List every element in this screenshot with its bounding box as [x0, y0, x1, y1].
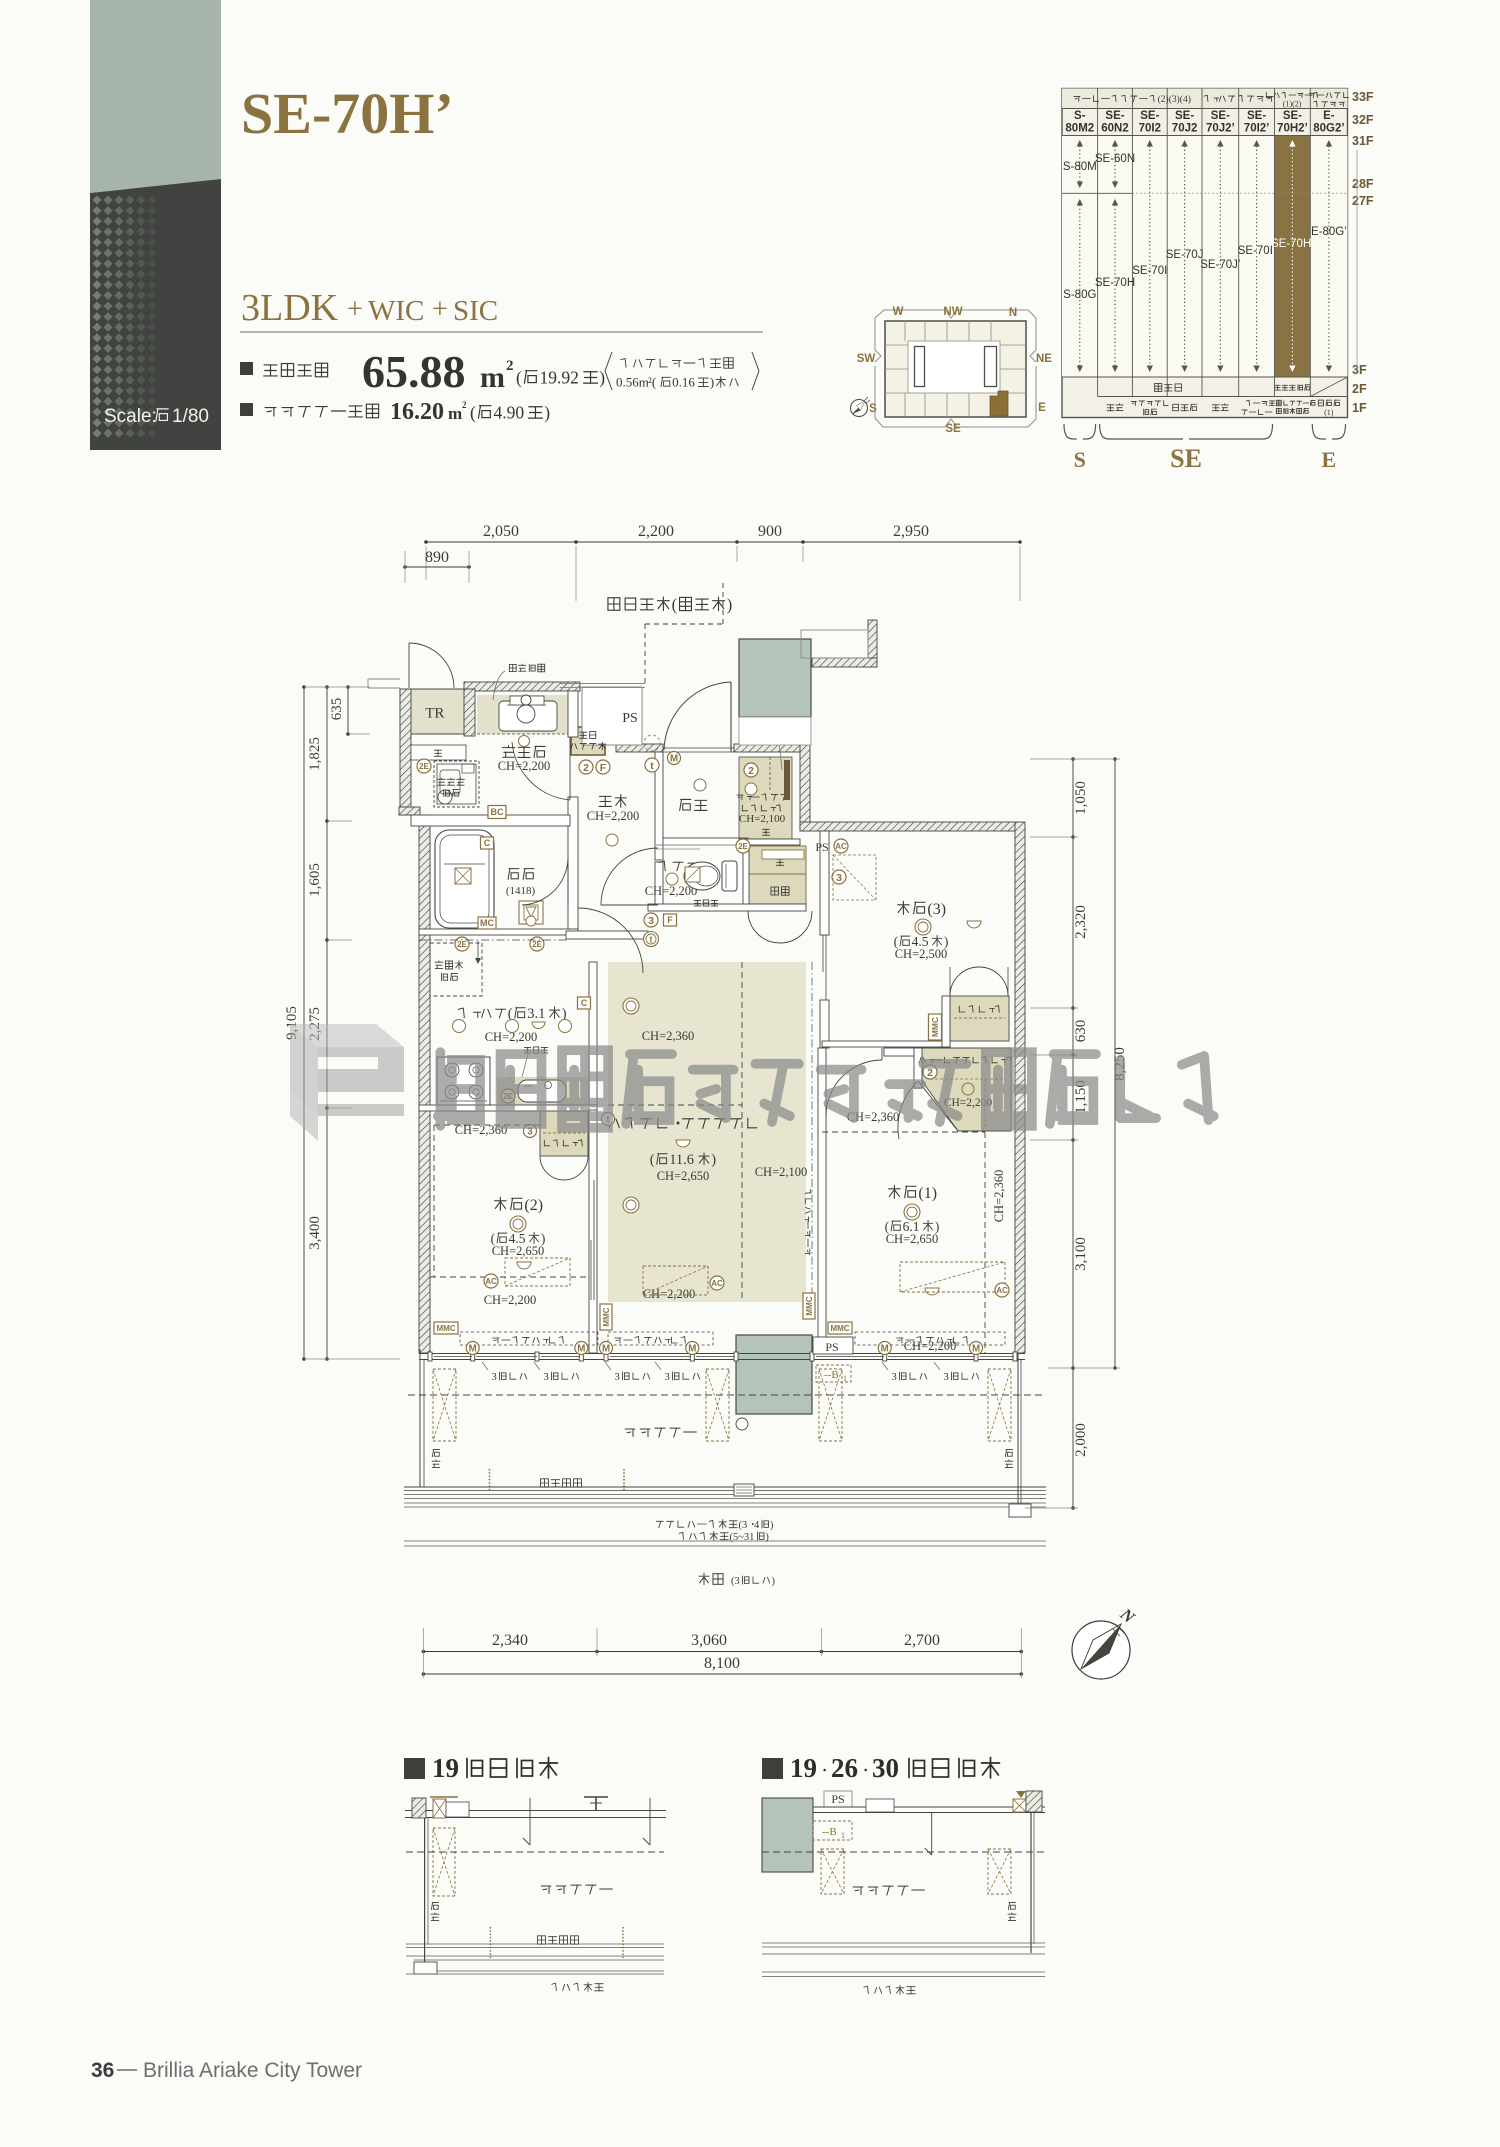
svg-text:F: F — [667, 915, 673, 925]
svg-text:CH=2,650: CH=2,650 — [657, 1169, 710, 1183]
svg-text:NE: NE — [1036, 353, 1052, 365]
svg-text:(3): (3) — [927, 901, 946, 918]
svg-text:CH=2,100: CH=2,100 — [739, 813, 786, 825]
svg-text:80G2’: 80G2’ — [1313, 123, 1344, 135]
svg-text:AC: AC — [711, 1279, 723, 1288]
svg-text:SE: SE — [1170, 444, 1202, 473]
svg-text:(1)(2): (1)(2) — [1283, 99, 1302, 108]
svg-text:890: 890 — [425, 549, 449, 566]
svg-text:AC: AC — [996, 1286, 1008, 1295]
svg-text:M: M — [670, 754, 678, 765]
svg-text:1F: 1F — [1352, 401, 1367, 415]
svg-text:): ) — [599, 367, 605, 387]
svg-text:CH=2,360: CH=2,360 — [642, 1029, 695, 1043]
svg-text:): ) — [770, 1520, 774, 1531]
svg-text:900: 900 — [758, 523, 782, 540]
svg-text:2E: 2E — [738, 842, 748, 851]
svg-text:W: W — [893, 306, 904, 318]
svg-text:t: t — [650, 935, 653, 945]
svg-text:MC: MC — [480, 918, 494, 928]
svg-text:3: 3 — [615, 1372, 620, 1383]
svg-text:Scale:: Scale: — [104, 406, 157, 427]
svg-text:2E: 2E — [419, 762, 429, 771]
svg-text:CH=2,100: CH=2,100 — [755, 1165, 808, 1179]
svg-text:SE: SE — [945, 423, 961, 435]
svg-text:3.1: 3.1 — [527, 1006, 545, 1022]
svg-text:M: M — [469, 1344, 477, 1355]
svg-text:0.56m: 0.56m — [616, 375, 649, 390]
svg-text:32F: 32F — [1352, 113, 1374, 127]
svg-text:36: 36 — [91, 2059, 114, 2082]
svg-text:CH=2,200: CH=2,200 — [587, 809, 640, 823]
svg-text:11.6: 11.6 — [669, 1152, 694, 1168]
svg-text:SE-70I’: SE-70I’ — [1238, 245, 1276, 257]
svg-text:3: 3 — [944, 1372, 949, 1383]
svg-text:NW: NW — [943, 306, 962, 318]
svg-text:): ) — [710, 375, 714, 390]
svg-text:): ) — [727, 595, 733, 614]
svg-text:N: N — [1009, 307, 1017, 319]
svg-text:630: 630 — [1073, 1020, 1089, 1043]
svg-text:3: 3 — [892, 1372, 897, 1383]
svg-text:+: + — [432, 294, 448, 325]
svg-text:0.16: 0.16 — [672, 375, 695, 390]
svg-text:26: 26 — [831, 1753, 858, 1783]
svg-text:1: 1 — [843, 1374, 847, 1383]
svg-text:SE-60N: SE-60N — [1095, 153, 1135, 165]
svg-text:8,100: 8,100 — [704, 1655, 740, 1672]
svg-text:SE-70I: SE-70I — [1132, 265, 1167, 277]
svg-text:(3: (3 — [731, 1576, 740, 1587]
svg-text:): ) — [711, 1152, 716, 1168]
svg-text:E: E — [1038, 402, 1046, 414]
svg-text:65.88: 65.88 — [362, 346, 466, 397]
svg-text:4.90: 4.90 — [493, 402, 524, 422]
svg-text:CH=2,200: CH=2,200 — [498, 759, 551, 773]
svg-text:635: 635 — [329, 698, 345, 721]
svg-text:m: m — [448, 404, 462, 423]
svg-text:SE-70J’: SE-70J’ — [1200, 259, 1240, 271]
svg-text:31F: 31F — [1352, 134, 1374, 148]
svg-text:CH=2,650: CH=2,650 — [492, 1244, 545, 1258]
svg-text:SIC: SIC — [453, 295, 498, 327]
svg-text:70I2’: 70I2’ — [1244, 123, 1270, 135]
svg-text:Brillia Ariake City Tower: Brillia Ariake City Tower — [143, 2059, 362, 2082]
svg-text:2,200: 2,200 — [638, 523, 674, 540]
svg-text:(: ( — [516, 367, 522, 387]
svg-text:3: 3 — [836, 872, 842, 884]
svg-text:3: 3 — [665, 1372, 670, 1383]
svg-text:--B: --B — [822, 1826, 837, 1838]
svg-text:SE-: SE- — [1283, 110, 1302, 122]
svg-text:M: M — [972, 1344, 980, 1355]
svg-text:S-: S- — [1074, 110, 1086, 122]
svg-text:2,320: 2,320 — [1073, 905, 1089, 939]
svg-text:t: t — [650, 760, 654, 772]
svg-text:4: 4 — [754, 1520, 760, 1531]
svg-text:M: M — [881, 1344, 889, 1355]
svg-text:²(: ²( — [648, 375, 656, 390]
svg-text:C: C — [581, 998, 588, 1008]
svg-text:PS: PS — [831, 1792, 844, 1806]
svg-text:SE-: SE- — [1247, 110, 1266, 122]
svg-text:CH=2,200: CH=2,200 — [484, 1293, 537, 1307]
svg-text:PS: PS — [622, 711, 638, 726]
svg-text:1/80: 1/80 — [172, 406, 209, 427]
svg-text:(1): (1) — [918, 1185, 937, 1202]
svg-text:+: + — [347, 294, 363, 325]
svg-text:M: M — [577, 1344, 585, 1355]
svg-text:MMC: MMC — [830, 1324, 849, 1333]
svg-text:2,050: 2,050 — [483, 523, 519, 540]
svg-text:(: ( — [470, 402, 476, 422]
svg-text:CH=2,650: CH=2,650 — [886, 1232, 939, 1246]
svg-text:SW: SW — [857, 353, 876, 365]
svg-text:19.92: 19.92 — [539, 367, 578, 387]
svg-text:(3: (3 — [738, 1520, 747, 1531]
svg-text:--B: --B — [824, 1369, 839, 1381]
svg-text:2: 2 — [506, 358, 514, 374]
svg-text:2,340: 2,340 — [492, 1632, 528, 1649]
svg-text:1,605: 1,605 — [307, 863, 323, 897]
svg-text:70H2’: 70H2’ — [1277, 123, 1308, 135]
svg-text:MMC: MMC — [436, 1324, 455, 1333]
svg-text:PS: PS — [825, 1340, 838, 1354]
svg-text:TR: TR — [425, 705, 444, 721]
svg-text:2: 2 — [748, 765, 754, 777]
svg-text:19: 19 — [432, 1753, 459, 1783]
svg-text:BC: BC — [491, 807, 504, 817]
svg-text:AC: AC — [485, 1277, 497, 1286]
svg-text:3,060: 3,060 — [691, 1632, 727, 1649]
svg-text:F: F — [600, 762, 607, 774]
svg-text:27F: 27F — [1352, 194, 1374, 208]
svg-text:CH=2,360: CH=2,360 — [992, 1170, 1006, 1223]
svg-text:(: ( — [650, 1152, 655, 1168]
svg-text:S-80M: S-80M — [1063, 161, 1097, 173]
svg-text:2: 2 — [462, 400, 467, 410]
svg-text:E: E — [1322, 447, 1337, 472]
svg-text:3: 3 — [544, 1372, 549, 1383]
svg-text:2F: 2F — [1352, 382, 1367, 396]
svg-text:m: m — [480, 361, 505, 394]
svg-text:80M2: 80M2 — [1065, 123, 1094, 135]
svg-text:S: S — [1074, 447, 1086, 472]
svg-text:M: M — [688, 1344, 696, 1355]
svg-text:19: 19 — [790, 1753, 817, 1783]
svg-text:SE-70J: SE-70J — [1166, 249, 1204, 261]
svg-text:(1): (1) — [1324, 408, 1334, 417]
svg-text:WIC: WIC — [368, 295, 424, 327]
svg-text:70J2: 70J2 — [1172, 123, 1198, 135]
svg-text:SE-: SE- — [1105, 110, 1124, 122]
svg-text:30: 30 — [872, 1753, 899, 1783]
svg-text:3,400: 3,400 — [307, 1216, 323, 1250]
svg-text:C: C — [484, 838, 491, 848]
svg-text:3: 3 — [492, 1372, 497, 1383]
svg-text:33F: 33F — [1352, 90, 1374, 104]
svg-text:S-80G: S-80G — [1063, 289, 1096, 301]
svg-text:70I2: 70I2 — [1139, 123, 1161, 135]
svg-text:CH=2,500: CH=2,500 — [895, 947, 948, 961]
svg-text:SE-: SE- — [1140, 110, 1159, 122]
svg-text:16.20: 16.20 — [390, 399, 444, 425]
svg-text:2,700: 2,700 — [904, 1632, 940, 1649]
svg-text:1,050: 1,050 — [1073, 781, 1089, 815]
svg-text:MMC: MMC — [602, 1307, 611, 1326]
svg-text:): ) — [771, 1576, 775, 1587]
svg-text:1,825: 1,825 — [307, 737, 323, 771]
svg-text:2: 2 — [583, 762, 589, 774]
svg-text:(2)(3)(4): (2)(3)(4) — [1158, 94, 1191, 105]
svg-text:): ) — [544, 402, 550, 422]
svg-text:3,100: 3,100 — [1073, 1237, 1089, 1271]
svg-text:2E: 2E — [457, 940, 467, 949]
svg-text:E-80G’: E-80G’ — [1311, 226, 1347, 238]
svg-text:(: ( — [672, 595, 678, 614]
svg-text:2,000: 2,000 — [1073, 1423, 1089, 1457]
svg-text:(1418): (1418) — [506, 885, 536, 897]
svg-text:3F: 3F — [1352, 363, 1367, 377]
svg-text:2E: 2E — [532, 940, 542, 949]
svg-text:SE-: SE- — [1211, 110, 1230, 122]
svg-text:S: S — [869, 403, 877, 415]
svg-text:SE-: SE- — [1175, 110, 1194, 122]
svg-text:MMC: MMC — [805, 1296, 814, 1315]
svg-text:28F: 28F — [1352, 177, 1374, 191]
svg-text:M: M — [602, 1344, 610, 1355]
svg-text:PS: PS — [815, 840, 828, 854]
svg-text:(2): (2) — [524, 1197, 543, 1214]
svg-text:SE-70H: SE-70H — [1095, 277, 1135, 289]
svg-text:60N2: 60N2 — [1101, 123, 1129, 135]
svg-text:2,950: 2,950 — [893, 523, 929, 540]
svg-text:AC: AC — [835, 842, 847, 851]
svg-text:70J2’: 70J2’ — [1206, 123, 1235, 135]
svg-text:MMC: MMC — [930, 1017, 940, 1037]
svg-text:SE-70H’: SE-70H’ — [241, 81, 454, 146]
svg-text:SE-70H’: SE-70H’ — [1271, 238, 1314, 250]
svg-text:1: 1 — [841, 1831, 845, 1840]
svg-text:CH=2,200: CH=2,200 — [643, 1287, 696, 1301]
svg-text:3LDK: 3LDK — [241, 287, 339, 329]
svg-text:3: 3 — [648, 915, 654, 927]
svg-text:E-: E- — [1323, 110, 1335, 122]
